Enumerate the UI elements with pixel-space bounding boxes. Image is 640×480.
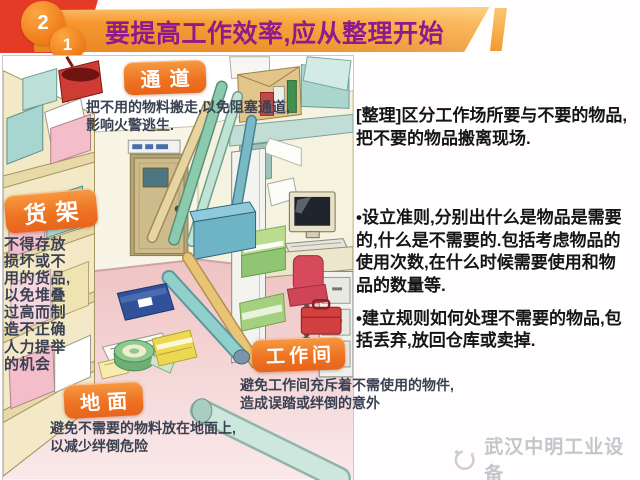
- step-badge-2-number: 2: [37, 12, 48, 35]
- tag-floor: 地面: [63, 381, 144, 419]
- seiri-bullet-2: •建立规则如何处理不需要的物品,包括丢弃,放回仓库或卖掉.: [356, 308, 628, 353]
- tag-passage-label: 通道: [131, 62, 199, 93]
- tag-passage: 通道: [123, 60, 206, 96]
- seiri-text-panel: [整理]区分工作场所要与不要的物品,把不要的物品搬离现场. •设立准则,分别出什…: [356, 105, 628, 363]
- seiri-definition: [整理]区分工作场所要与不要的物品,把不要的物品搬离现场.: [356, 105, 628, 150]
- page-title: 要提高工作效率,应从整理开始: [105, 14, 497, 50]
- note-passage: 把不用的物料搬走,以免阻塞通道, 影响火警逃生.: [86, 99, 368, 135]
- slide: 2 1 要提高工作效率,应从整理开始: [0, 0, 640, 480]
- brand-name: 武汉中明工业设备: [484, 432, 640, 480]
- tag-workshop: 工作间: [251, 336, 345, 372]
- step-badge-1-number: 1: [63, 35, 72, 55]
- seiri-bullet-1: •设立准则,分别出什么是物品是需要的,什么是不需要的.包括考虑物品的使用次数,在…: [356, 207, 628, 297]
- brand-logo-icon: [452, 446, 477, 472]
- tag-shelf-label: 货架: [13, 191, 89, 231]
- brand-watermark: 武汉中明工业设备: [452, 432, 640, 480]
- tag-shelf: 货架: [4, 188, 99, 234]
- note-floor: 避免不需要的物料放在地面上, 以减少绊倒危险: [50, 420, 292, 456]
- note-workshop: 避免工作间充斥着不需使用的物件, 造成误踏或绊倒的意外: [240, 377, 478, 413]
- tag-workshop-label: 工作间: [262, 340, 336, 370]
- note-shelf: 不得存放损坏或不用的货品,以免堆叠过高而制造不正确人力提举的机会: [4, 236, 78, 373]
- tag-floor-label: 地面: [72, 384, 134, 416]
